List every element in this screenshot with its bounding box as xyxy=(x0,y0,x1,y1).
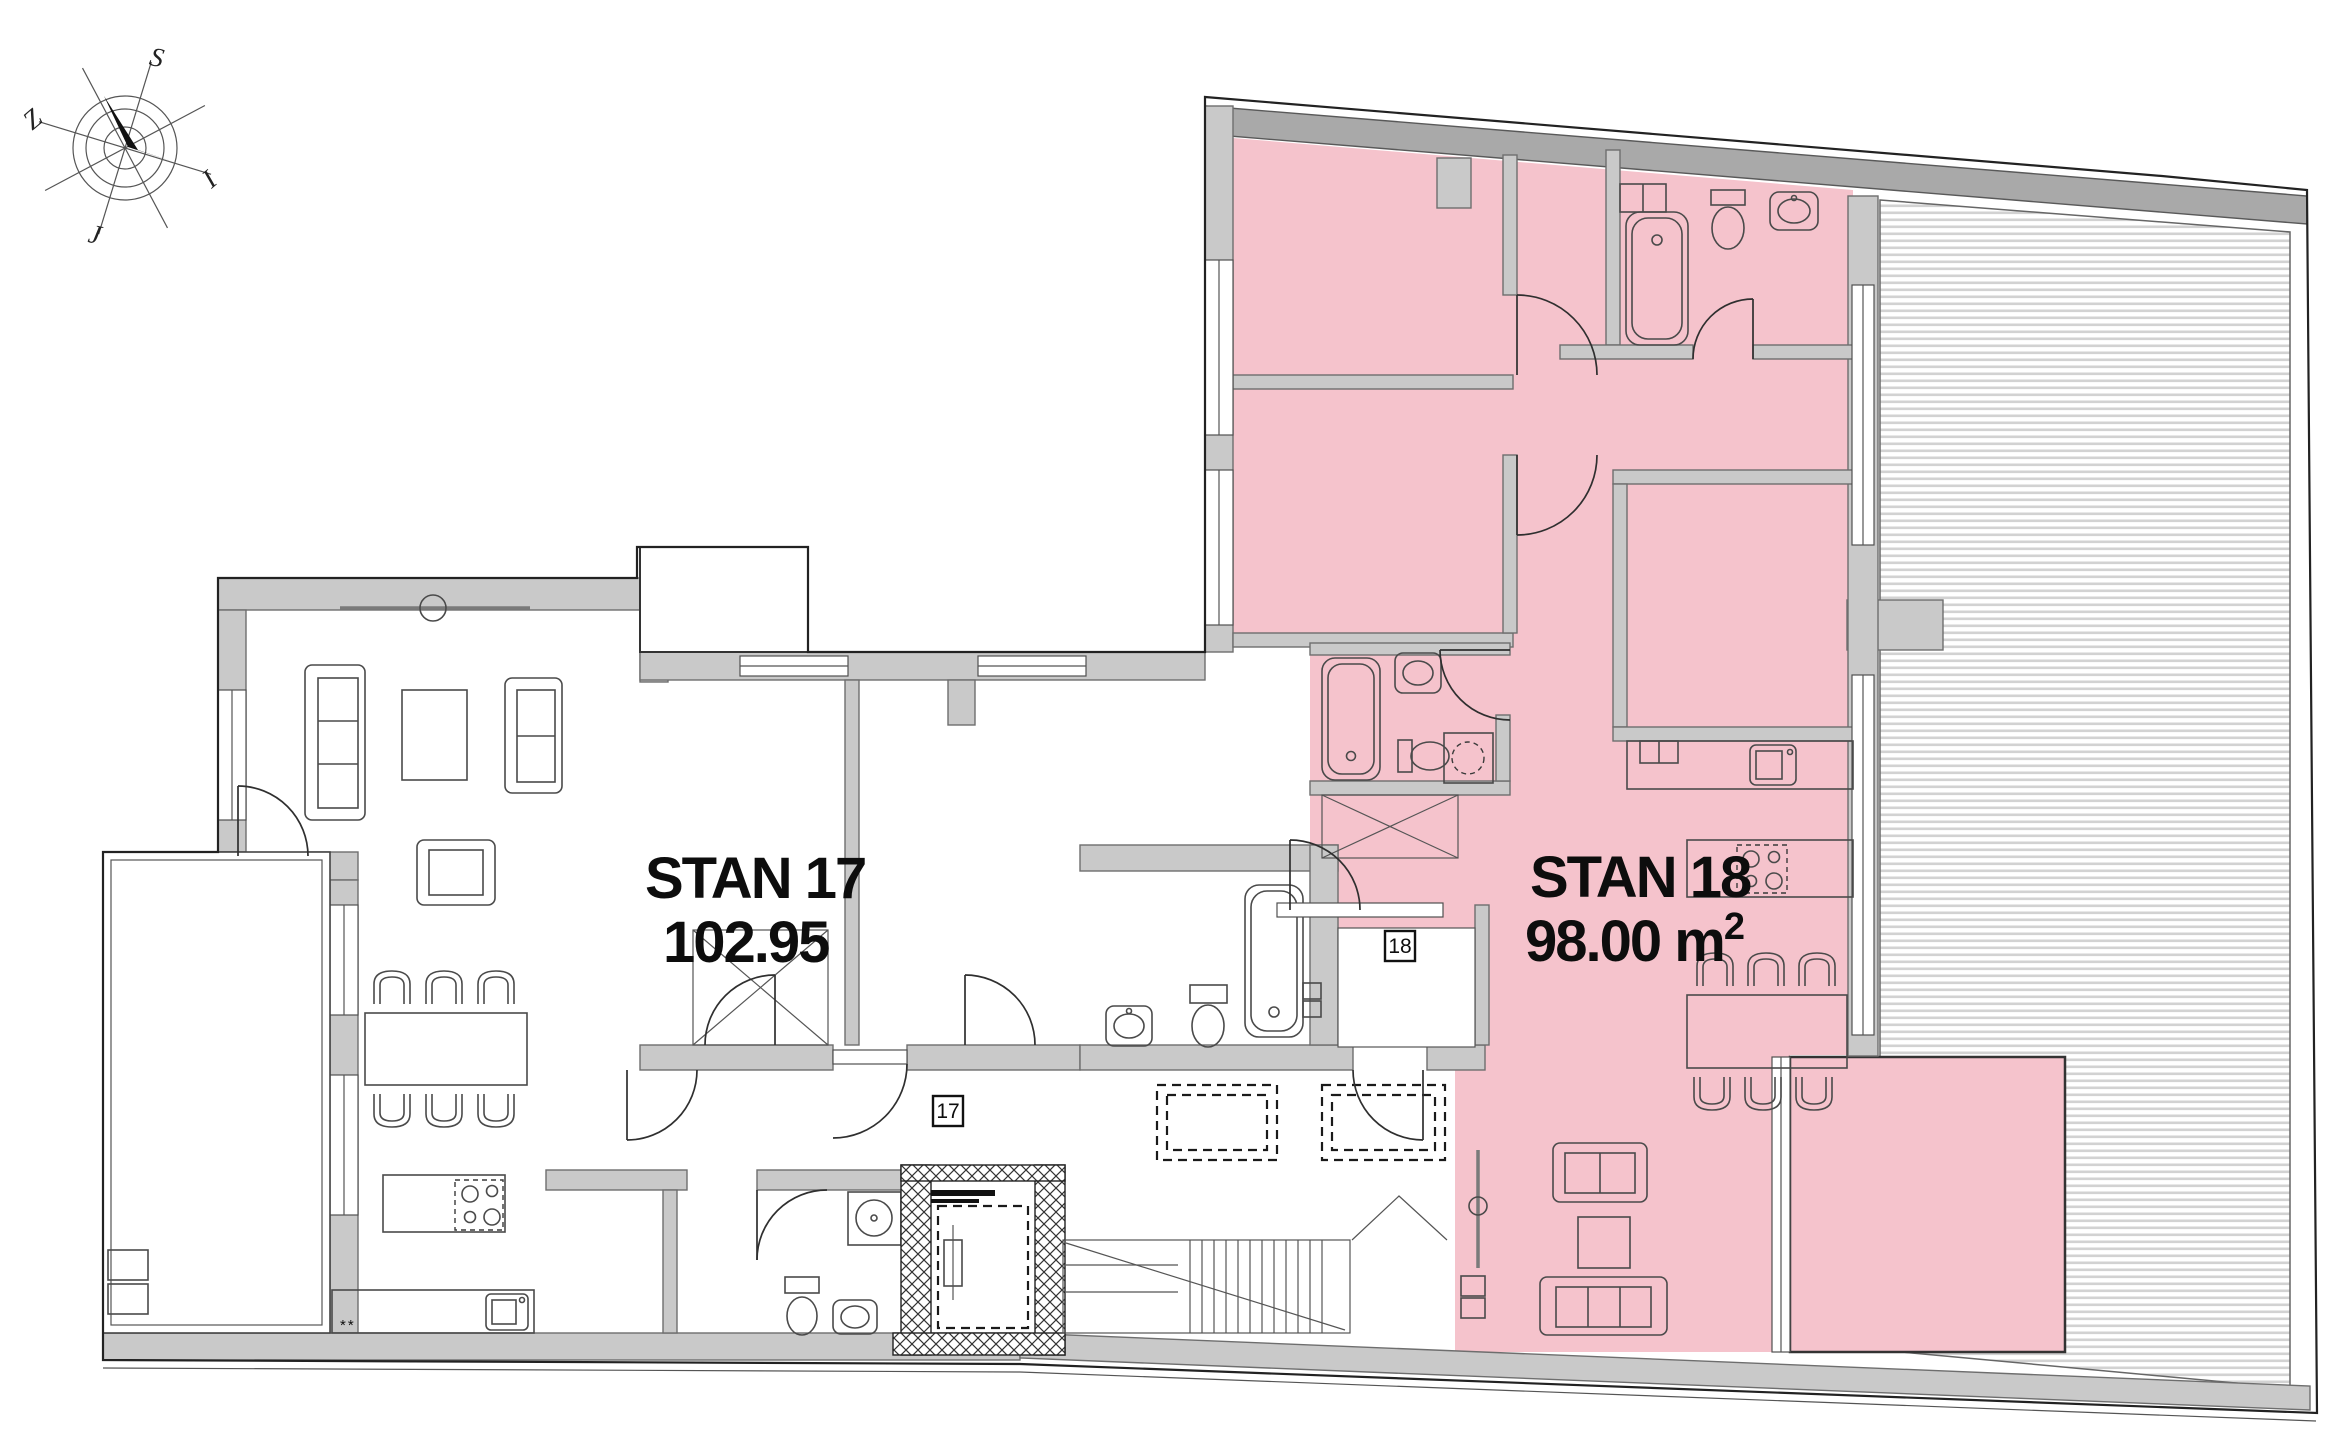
floor-plan-page: ** xyxy=(0,0,2325,1435)
kitchen-note: ** xyxy=(340,1317,356,1334)
skylight xyxy=(1157,1085,1277,1160)
window xyxy=(1852,675,1874,1035)
chair-symbol xyxy=(374,1094,410,1127)
chair-symbol xyxy=(478,1094,514,1127)
window xyxy=(740,656,848,676)
chair-symbol xyxy=(426,1094,462,1127)
stan-18-area: 98.00 m2 xyxy=(1525,906,1744,974)
entry-door-17 xyxy=(833,1050,907,1138)
window xyxy=(330,905,358,1015)
window xyxy=(1852,285,1874,545)
skylight xyxy=(1322,1085,1445,1160)
window xyxy=(1205,260,1233,435)
door xyxy=(705,975,775,1045)
sofa-symbol xyxy=(305,665,365,820)
compass-rose: S Z I J xyxy=(13,36,238,261)
door-tag-18-text: 18 xyxy=(1388,935,1411,958)
dining-table-symbol xyxy=(365,1013,527,1085)
shower-symbol xyxy=(848,1192,901,1245)
compass-south-label: J xyxy=(86,218,106,250)
window xyxy=(218,690,246,820)
coffee-table-symbol xyxy=(402,690,467,780)
door xyxy=(757,1190,827,1260)
window xyxy=(978,656,1086,676)
sink-symbol xyxy=(833,1300,877,1334)
compass-west-label: Z xyxy=(17,102,49,135)
armchair-symbol xyxy=(417,840,495,905)
stan-18-name: STAN 18 xyxy=(1530,845,1751,910)
balcony xyxy=(103,852,330,1333)
stair-direction-marker xyxy=(1352,1196,1447,1240)
door xyxy=(965,975,1035,1045)
kitchen-island xyxy=(383,1175,505,1232)
stan-17-name: STAN 17 xyxy=(645,846,865,911)
door xyxy=(238,786,308,856)
stairs xyxy=(1063,1196,1447,1333)
window xyxy=(1205,470,1233,625)
sink-symbol xyxy=(1106,1006,1152,1046)
kitchen-counter xyxy=(332,1290,534,1333)
toilet-symbol xyxy=(1190,985,1227,1047)
floor-plan-canvas: ** xyxy=(0,0,2325,1435)
elevator-shaft xyxy=(893,1165,1065,1355)
door-tag-17: 17 xyxy=(933,1096,963,1126)
sofa-symbol xyxy=(505,678,562,793)
door-tag-17-text: 17 xyxy=(936,1100,959,1123)
chair-symbol xyxy=(426,971,462,1004)
toilet-symbol xyxy=(785,1277,819,1335)
window xyxy=(330,1075,358,1215)
door xyxy=(1353,1070,1423,1140)
door xyxy=(627,1070,697,1140)
chair-symbol xyxy=(478,971,514,1004)
stan-17-area: 102.95 xyxy=(663,910,829,975)
elevator-cab xyxy=(938,1206,1028,1328)
compass-east-label: I xyxy=(195,163,223,194)
door-tag-18: 18 xyxy=(1385,931,1415,961)
compass-north-label: S xyxy=(147,41,167,73)
chair-symbol xyxy=(374,971,410,1004)
roof-shaft xyxy=(640,547,808,652)
